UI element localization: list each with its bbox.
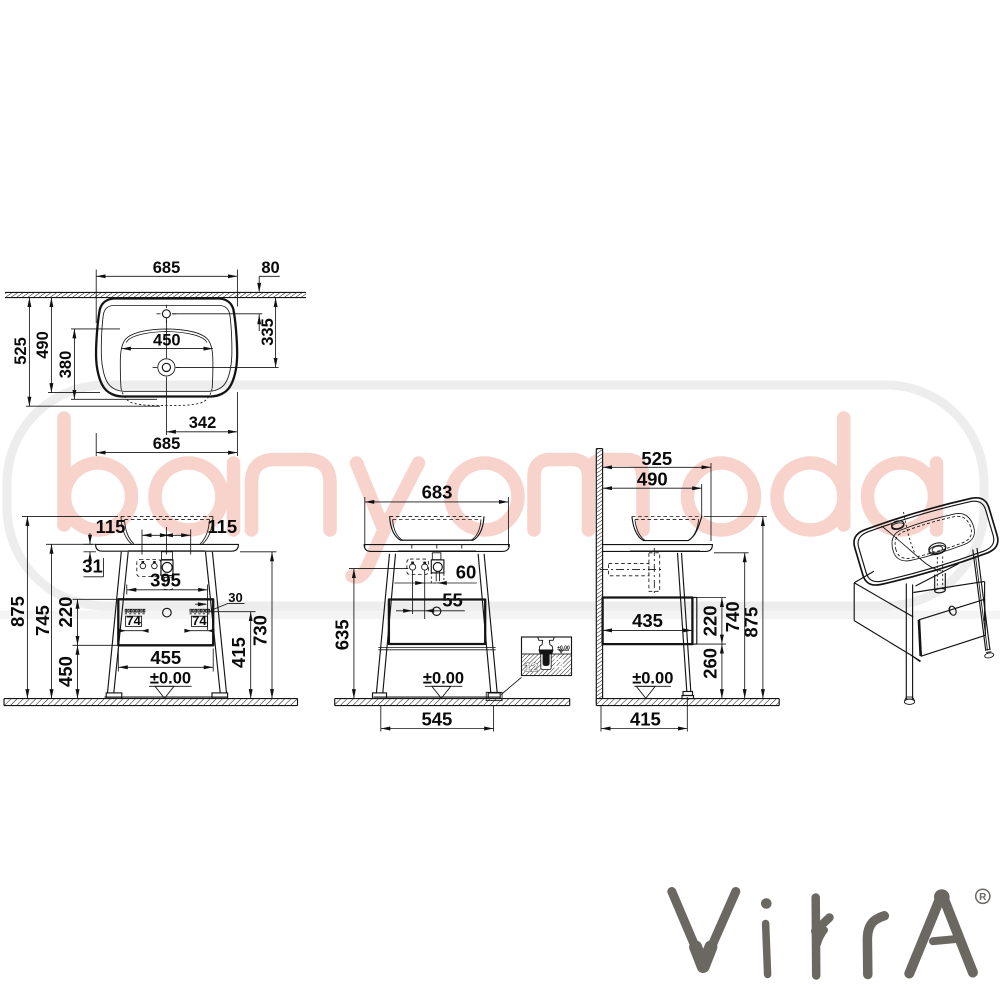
- svg-text:525: 525: [641, 448, 672, 469]
- svg-text:730: 730: [250, 615, 271, 646]
- svg-text:260: 260: [699, 648, 720, 679]
- svg-text:30: 30: [228, 590, 242, 605]
- svg-text:875: 875: [740, 607, 761, 638]
- svg-text:12: 12: [524, 661, 538, 675]
- svg-text:±0.00: ±0.00: [632, 670, 673, 688]
- svg-text:±0.00: ±0.00: [150, 670, 191, 688]
- svg-text:450: 450: [55, 656, 76, 687]
- svg-text:455: 455: [150, 647, 181, 668]
- svg-text:220: 220: [699, 605, 720, 636]
- svg-text:435: 435: [632, 610, 663, 631]
- svg-text:875: 875: [7, 596, 28, 627]
- svg-text:415: 415: [228, 637, 249, 668]
- svg-text:60: 60: [456, 561, 477, 582]
- svg-text:74: 74: [192, 613, 207, 628]
- svg-text:335: 335: [259, 318, 277, 346]
- svg-text:490: 490: [637, 469, 668, 490]
- svg-text:220: 220: [55, 597, 76, 628]
- svg-text:115: 115: [207, 516, 237, 537]
- svg-text:685: 685: [153, 259, 181, 277]
- svg-text:±0.00: ±0.00: [423, 670, 464, 688]
- svg-text:R: R: [979, 892, 987, 903]
- svg-text:490: 490: [34, 331, 52, 359]
- svg-text:380: 380: [57, 351, 75, 379]
- svg-text:685: 685: [153, 435, 181, 453]
- svg-text:12: 12: [552, 657, 566, 671]
- svg-text:525: 525: [12, 337, 30, 365]
- svg-text:74: 74: [126, 613, 141, 628]
- svg-text:115: 115: [96, 516, 126, 537]
- svg-text:450: 450: [153, 331, 181, 349]
- svg-text:635: 635: [331, 619, 352, 650]
- svg-text:545: 545: [421, 708, 452, 729]
- svg-text:395: 395: [150, 569, 181, 590]
- svg-text:683: 683: [422, 481, 453, 502]
- svg-text:415: 415: [630, 708, 661, 729]
- svg-text:80: 80: [261, 259, 279, 277]
- svg-text:31: 31: [82, 555, 103, 576]
- svg-text:342: 342: [189, 414, 217, 432]
- svg-text:745: 745: [32, 605, 53, 636]
